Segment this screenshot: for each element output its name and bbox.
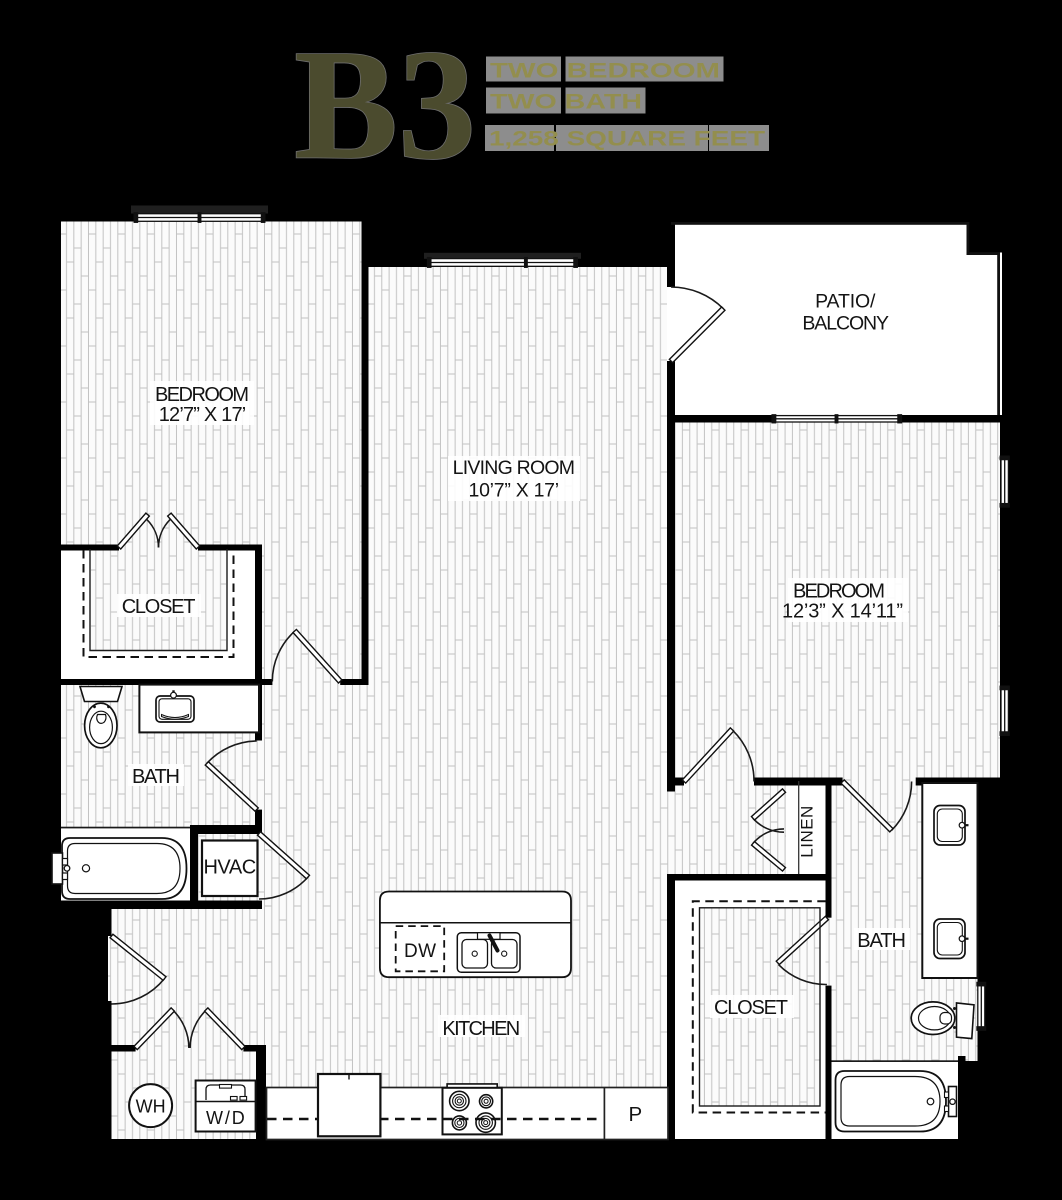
svg-text:CLOSET: CLOSET <box>714 997 788 1019</box>
svg-text:CLOSET: CLOSET <box>122 596 196 618</box>
svg-text:P: P <box>629 1103 643 1126</box>
svg-text:BALCONY: BALCONY <box>802 312 889 334</box>
svg-text:WH: WH <box>136 1097 166 1117</box>
svg-text:1,258 SQUARE FEET: 1,258 SQUARE FEET <box>489 126 765 150</box>
svg-text:BEDROOM: BEDROOM <box>793 581 885 603</box>
svg-text:HVAC: HVAC <box>203 857 256 879</box>
svg-text:LINEN: LINEN <box>798 806 817 858</box>
svg-text:12’7” X 17’: 12’7” X 17’ <box>159 404 247 426</box>
svg-text:TWO BEDROOM: TWO BEDROOM <box>490 58 720 82</box>
svg-text:BATH: BATH <box>132 766 180 788</box>
svg-text:BATH: BATH <box>857 930 906 952</box>
svg-text:B3: B3 <box>294 18 476 193</box>
svg-text:DW: DW <box>404 941 436 962</box>
svg-text:12’3” X 14’11”: 12’3” X 14’11” <box>782 601 903 623</box>
svg-text:PATIO/: PATIO/ <box>815 290 876 312</box>
svg-text:LIVING ROOM: LIVING ROOM <box>453 457 575 479</box>
svg-text:W/D: W/D <box>206 1108 245 1128</box>
svg-text:KITCHEN: KITCHEN <box>442 1018 520 1040</box>
svg-text:TWO BATH: TWO BATH <box>490 90 642 114</box>
svg-text:BEDROOM: BEDROOM <box>155 384 249 406</box>
svg-text:10’7” X 17’: 10’7” X 17’ <box>469 480 560 502</box>
